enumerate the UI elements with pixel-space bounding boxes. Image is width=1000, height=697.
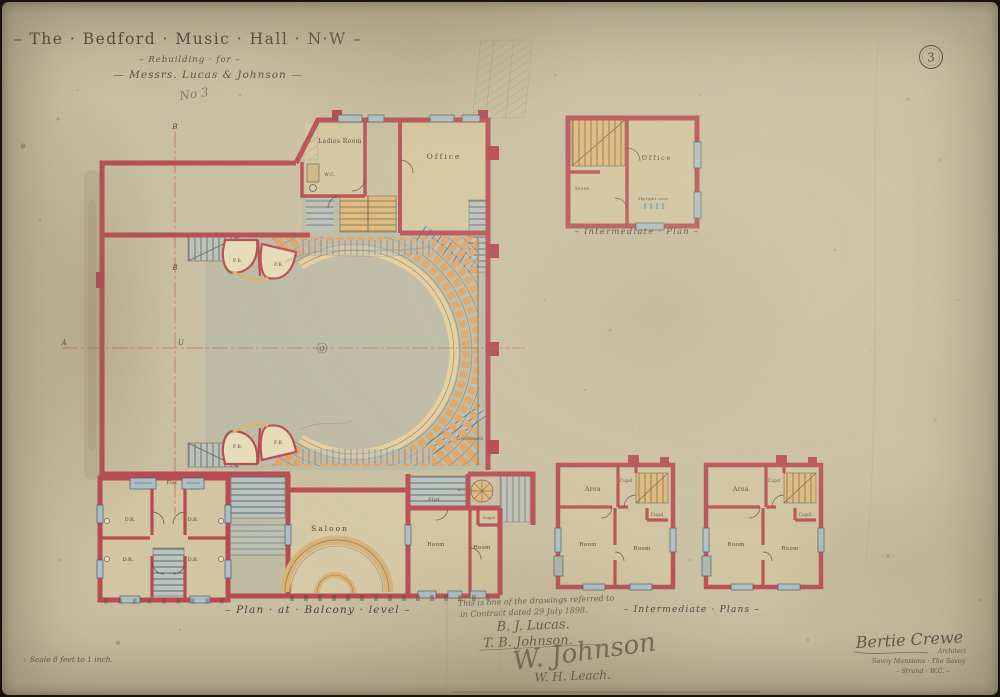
architect-title: Architect xyxy=(937,648,967,655)
room-left-label: Room xyxy=(427,542,445,548)
intermediate-plan-caption: – Intermediate · Plan – xyxy=(575,227,700,237)
room-right-label: Room xyxy=(473,545,491,551)
flat-roof-label: Flat xyxy=(167,480,178,486)
dressing-room-label: D.R. xyxy=(188,557,199,563)
title-block: – The · Bedford · Music · Hall · N·W – –… xyxy=(14,30,362,103)
section-marker-o: O xyxy=(319,345,325,353)
sheet-number-badge: 3 xyxy=(920,46,943,69)
section-marker-b: B xyxy=(171,123,177,131)
title-line1: – The · Bedford · Music · Hall · N·W – xyxy=(14,30,362,48)
architectural-plan-svg: Area Cupd Cupd Room Room – The · Bedford… xyxy=(2,2,998,695)
dressing-room-label: D.R. xyxy=(188,517,199,523)
skylight-hatch xyxy=(640,203,666,209)
gentlemen-label: Gentlemen xyxy=(457,436,484,441)
office-label: Office xyxy=(642,154,673,162)
dressing-room-label: D.R. xyxy=(123,557,134,563)
private-box-label: P.B. xyxy=(274,440,284,446)
flat-small-label: Flat xyxy=(428,497,440,503)
section-marker-u: U xyxy=(178,339,185,347)
intermediate-plans-bottom: – Intermediate · Plans – xyxy=(554,455,824,615)
architect-block: Bertie Crewe Architect Savoy Mansions · … xyxy=(854,627,967,675)
private-box-label: P.B. xyxy=(233,258,243,264)
drawing-photograph: Area Cupd Cupd Room Room – The · Bedford… xyxy=(0,0,1000,697)
wc-label: W.C. xyxy=(324,172,336,178)
office-label: Office xyxy=(427,152,462,161)
saloon-label: Saloon xyxy=(311,524,349,533)
title-line2: – Rebuilding · for – xyxy=(139,55,240,65)
section-marker-b: B xyxy=(171,264,177,272)
pencil-ghost-stairs xyxy=(473,40,533,118)
signature-leach: W. H. Leach. xyxy=(534,668,611,685)
drawing-sheet: Area Cupd Cupd Room Room – The · Bedford… xyxy=(2,2,998,695)
intermediate-plan-top: Office Store Skylight over – Intermediat… xyxy=(568,118,701,237)
skylight-label: Skylight over xyxy=(638,196,669,201)
dressing-room-label: D.R. xyxy=(125,517,136,523)
architect-address1: Savoy Mansions · The Savoy xyxy=(872,657,966,665)
store-label: Store xyxy=(575,186,589,192)
pencil-number-mark: No 3 xyxy=(177,85,209,103)
ladies-room-label: Ladies Room xyxy=(318,138,362,145)
scale-note: Scale 8 feet to 1 inch. xyxy=(30,655,113,664)
signature-lucas: B. J. Lucas. xyxy=(495,617,570,635)
private-box-label: P.B. xyxy=(274,262,284,268)
intermediate-plans-caption: – Intermediate · Plans – xyxy=(624,605,760,615)
wc-small-label: w.c. xyxy=(457,487,466,492)
private-box-label: P.B. xyxy=(233,444,243,450)
sheet-number: 3 xyxy=(927,51,935,65)
main-plan: P.B. P.B. P.B. P.B. xyxy=(60,110,533,616)
title-line3: — Messrs. Lucas & Johnson — xyxy=(113,69,302,81)
main-plan-caption: – Plan · at · Balcony · level – xyxy=(225,604,411,616)
architect-address2: – Strand · W.C. – xyxy=(896,667,950,675)
cupboard-label: Cupd xyxy=(483,515,495,520)
section-marker-a: A xyxy=(60,339,66,347)
